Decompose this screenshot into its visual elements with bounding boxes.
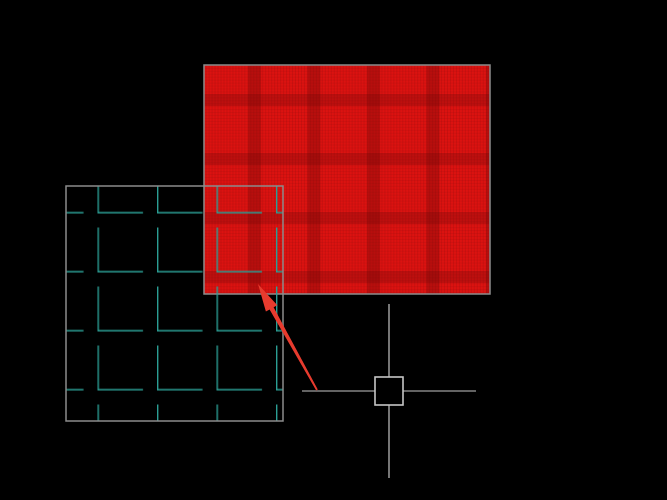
model-space-svg bbox=[0, 0, 667, 500]
teal-hatched-rect[interactable] bbox=[66, 186, 283, 421]
crosshair-cursor bbox=[302, 304, 476, 478]
pickbox bbox=[375, 377, 403, 405]
drawing-canvas[interactable] bbox=[0, 0, 667, 500]
